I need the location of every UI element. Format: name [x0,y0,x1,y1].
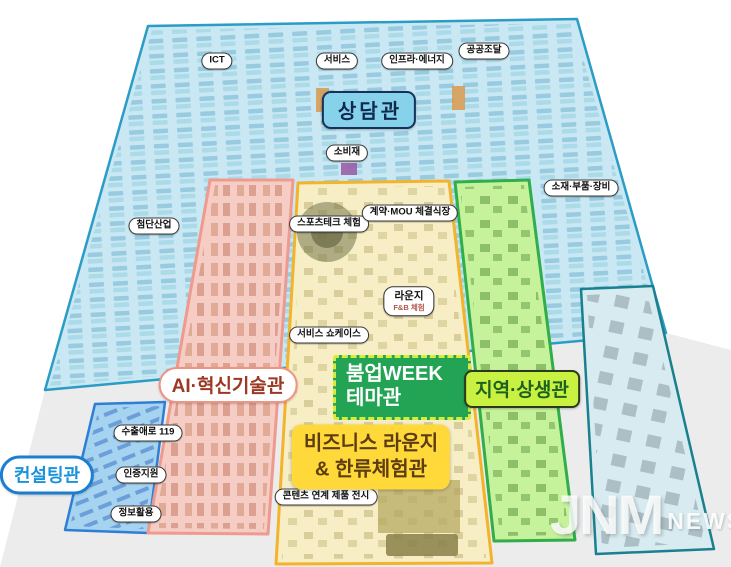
boomup-week-line2: 테마관 [346,386,462,410]
lounge-fnb-label: 라운지 F&B 체험 [383,286,434,316]
boomup-week-theme-hall-label: 붐업WEEK 테마관 [333,355,471,420]
area-label-sports-tech-experience: 스포츠테크 체험 [289,216,369,233]
area-label-public-procurement: 공공조달 [459,43,510,60]
area-label-materials-parts-equipment: 소재·부품·장비 [544,180,619,197]
watermark-main-text: JNM [550,488,662,541]
area-label-certification-support: 인증지원 [116,467,167,484]
area-label-service: 서비스 [316,53,358,70]
business-lounge-line1: 비즈니스 라운지 [304,431,438,457]
business-lounge-hall-label: 비즈니스 라운지 & 한류체험관 [292,425,450,490]
consulting-hall-label: 컨설팅관 [0,456,94,495]
area-label-info-utilization: 정보활용 [111,506,162,523]
area-label-export-help-119: 수출애로 119 [114,425,183,442]
lounge-subtitle: F&B 체험 [393,303,424,312]
area-label-advanced-industry: 첨단산업 [129,218,180,235]
jnm-news-watermark: JNM NEWS [550,488,731,541]
lounge-title: 라운지 [393,290,424,303]
area-label-infra-energy: 인프라·에너지 [381,53,453,70]
area-label-service-showcase: 서비스 쇼케이스 [289,327,369,344]
boomup-week-line1: 붐업WEEK [346,362,462,386]
area-label-contract-mou-hall: 계약·MOU 체결식장 [362,205,458,222]
regional-hall-label: 지역·상생관 [464,370,580,408]
watermark-sub-text: NEWS [667,508,731,535]
expo-floor-map: ICT서비스인프라·에너지공공조달소비재소재·부품·장비첨단산업스포츠테크 체험… [0,0,731,567]
ai-innovation-hall-label: AI·혁신기술관 [159,367,298,403]
area-label-ict: ICT [201,53,232,70]
counseling-hall-label: 상담관 [322,91,416,129]
area-label-content-linked-product-display: 콘텐츠 연계 제품 전시 [275,489,378,506]
business-lounge-line2: & 한류체험관 [304,457,438,483]
area-label-consumer-goods: 소비재 [326,145,368,162]
